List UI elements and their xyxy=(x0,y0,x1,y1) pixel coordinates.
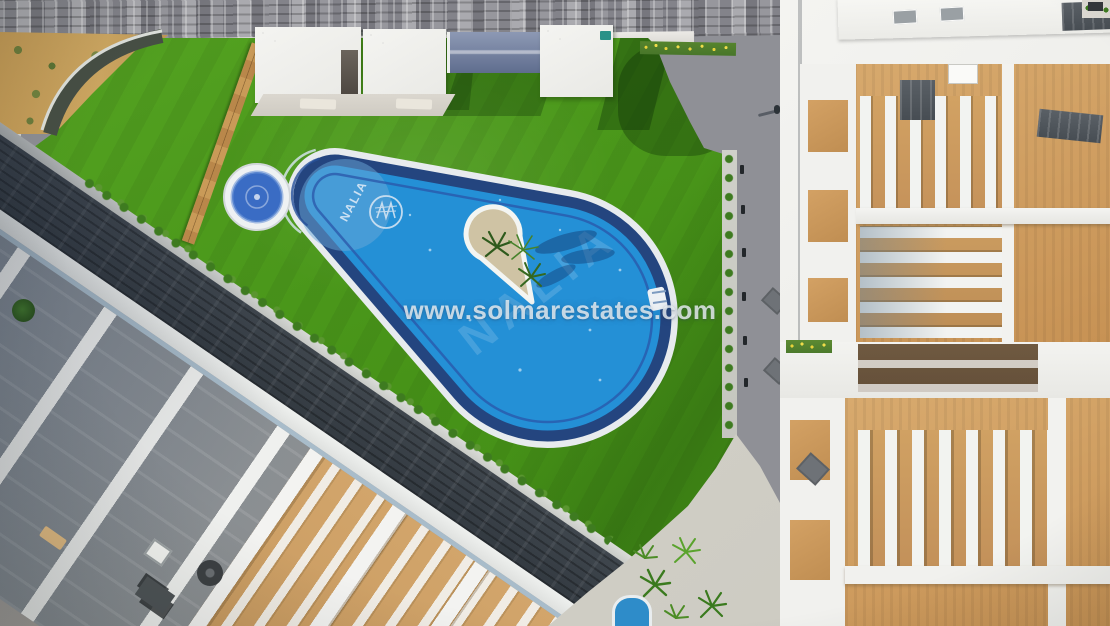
agency-watermark: www.solmarestates.com xyxy=(400,295,720,326)
garden-palms xyxy=(634,538,726,618)
green-parasol xyxy=(12,299,35,322)
round-table xyxy=(197,560,223,586)
circular-pool xyxy=(224,164,290,230)
aerial-photo-residential-complex: NALIA NALIA xyxy=(0,0,1110,626)
main-pool: NALIA NALIA xyxy=(274,145,668,436)
